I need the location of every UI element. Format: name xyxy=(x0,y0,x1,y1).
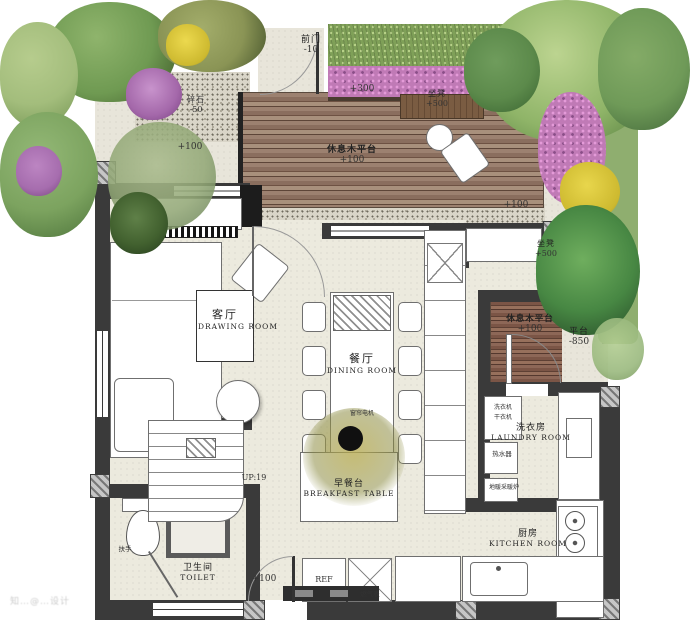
court-left-level-label: +100 xyxy=(168,142,212,152)
kitchen-label-en: KITCHEN ROOM xyxy=(488,539,568,548)
platform-level: -850 xyxy=(558,337,600,347)
bench-top-label-zh: 坐凳 xyxy=(416,88,458,99)
heating-unit-label: 地暖采暖炉 xyxy=(478,482,530,491)
bench-right-label: 坐凳 +500 xyxy=(528,238,564,258)
indoor-plant xyxy=(110,192,168,254)
tree xyxy=(598,8,690,130)
window-south xyxy=(152,602,244,617)
front-door-label: 前门 -10 xyxy=(288,32,334,55)
watermark: 知…@…设计 xyxy=(10,594,140,607)
column-s2 xyxy=(455,600,477,620)
curtain-motor-label: 窗帘电机 xyxy=(336,408,388,417)
bench-right-level: +500 xyxy=(528,249,564,258)
deck-right-level: +100 xyxy=(494,324,566,334)
deck-top-level: +100 xyxy=(310,155,394,165)
drawing-room-label-en: DRAWING ROOM xyxy=(198,322,252,331)
tall-cabinet xyxy=(427,243,463,283)
burner xyxy=(565,511,585,531)
bench-right-label-zh: 坐凳 xyxy=(528,238,564,249)
toilet-label-zh: 卫生间 xyxy=(166,560,230,573)
breakfast-label-en: BREAKFAST TABLE xyxy=(300,489,398,498)
stairs-label: UP:19 xyxy=(232,473,276,482)
dining-chair xyxy=(398,302,422,332)
platform-label-zh: 平台 xyxy=(558,324,600,337)
drawing-room-label: 客厅 DRAWING ROOM xyxy=(198,306,252,331)
dining-room-label: 餐厅 DINING ROOM xyxy=(318,350,406,375)
gravel-label: 碎石 -50 xyxy=(176,94,216,114)
base-cabinet xyxy=(395,556,461,602)
handrail-label: 扶手 xyxy=(112,543,138,553)
column-e xyxy=(600,386,620,408)
coffee-table xyxy=(216,380,260,424)
shrub-yellow xyxy=(166,24,210,66)
deck-right-label: 休息木平台 +100 xyxy=(494,312,566,334)
planter-level-label: +300 xyxy=(342,84,382,94)
stair-landing-hatch xyxy=(186,438,216,458)
bench-top-label: 坐凳 +500 xyxy=(416,88,458,108)
entry-column xyxy=(240,185,262,227)
wall-deck-right-west xyxy=(478,294,490,394)
burner xyxy=(565,533,585,553)
fridge-label: REF xyxy=(308,575,340,584)
gravel-label-zh: 碎石 xyxy=(176,94,216,105)
drawing-room-label-zh: 客厅 xyxy=(198,306,252,322)
faucet-dot xyxy=(496,566,501,571)
dining-room-label-en: DINING ROOM xyxy=(318,366,406,375)
kitchen-room-label: 厨房 KITCHEN ROOM xyxy=(488,526,568,548)
toilet-label-en: TOILET xyxy=(166,573,230,582)
kitchen-label-zh: 厨房 xyxy=(488,526,568,539)
column-w xyxy=(90,474,110,498)
dining-table-runner xyxy=(333,295,391,331)
dining-room-label-zh: 餐厅 xyxy=(318,350,406,366)
laundry-room-label: 洗衣房 LAUNDRY ROOM xyxy=(490,420,572,442)
front-door-label-zh: 前门 xyxy=(288,32,334,45)
laundry-door-opening xyxy=(506,384,548,396)
gas-meter-label: 燃气表 xyxy=(346,588,394,598)
counter-detail xyxy=(295,590,313,597)
window-dining-north xyxy=(330,225,430,237)
court-right-level-label: +100 xyxy=(494,200,538,210)
laundry-label-en: LAUNDRY ROOM xyxy=(490,433,572,442)
rear-door-level-label: +100 xyxy=(244,574,284,584)
bench-top-level: +500 xyxy=(416,99,458,108)
front-door-level: -10 xyxy=(288,45,334,55)
water-heater-label: 热水器 xyxy=(484,448,520,458)
toilet-label: 卫生间 TOILET xyxy=(166,560,230,582)
shrub-purple xyxy=(16,146,62,196)
laundry-label-zh: 洗衣房 xyxy=(490,420,572,433)
window-west xyxy=(96,330,109,418)
dining-chair xyxy=(302,390,326,420)
dryer-label: 干衣机 xyxy=(486,412,520,421)
tree xyxy=(0,22,78,127)
stairs xyxy=(148,420,244,522)
tree xyxy=(464,28,540,112)
water-heater-box xyxy=(484,442,518,474)
deck-top-label-zh: 休息木平台 xyxy=(310,142,394,155)
floor-plan: 客厅 DRAWING ROOM 餐厅 DINING ROOM 早餐台 BREAK… xyxy=(0,0,690,626)
curtain-motor-dot xyxy=(338,426,363,451)
shrub-purple xyxy=(126,68,182,120)
breakfast-table-label: 早餐台 BREAKFAST TABLE xyxy=(300,476,398,498)
platform-label: 平台 -850 xyxy=(558,324,600,347)
washer-label: 洗衣机 xyxy=(486,402,520,411)
deck-top-label: 休息木平台 +100 xyxy=(310,142,394,165)
breakfast-label-zh: 早餐台 xyxy=(300,476,398,489)
gravel-level: -50 xyxy=(176,105,216,114)
dining-chair xyxy=(302,302,326,332)
column-s1 xyxy=(243,600,265,620)
deck-right-label-zh: 休息木平台 xyxy=(494,312,566,324)
dining-chair xyxy=(398,390,422,420)
